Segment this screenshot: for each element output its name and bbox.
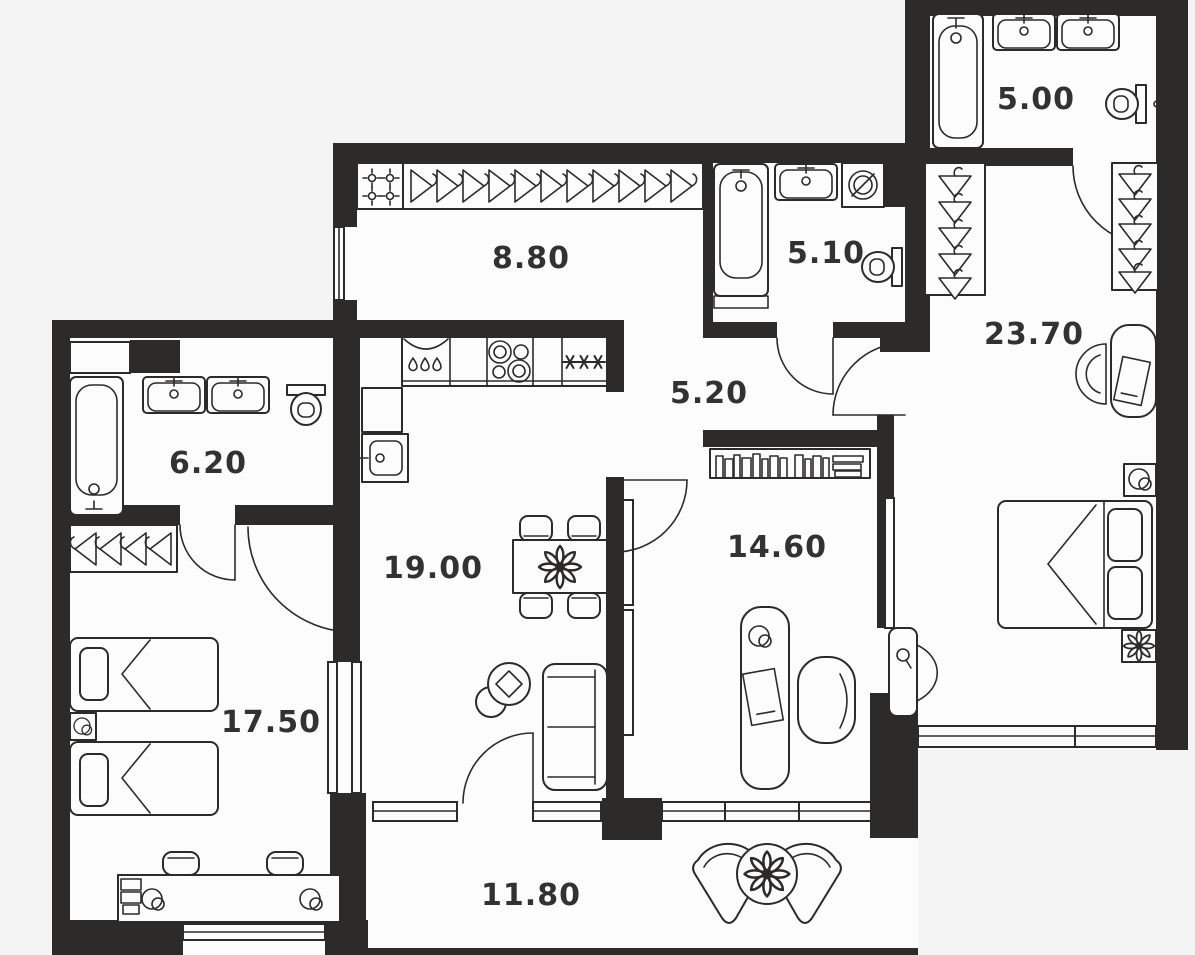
sliding-panel: [623, 610, 633, 735]
sliding-panel: [328, 662, 337, 793]
side-table-icon: [488, 663, 530, 705]
room-label-hallway: 5.20: [670, 376, 748, 411]
bed-icon: [70, 638, 218, 711]
bed-icon: [998, 501, 1152, 628]
room-label-study: 14.60: [727, 530, 827, 565]
stool-icon: [267, 852, 303, 875]
chair-icon: [520, 593, 552, 618]
window-study: [662, 802, 871, 821]
room-label-kitchen-living: 19.00: [383, 551, 483, 586]
bathtub-icon: [714, 164, 768, 308]
bathtub-icon: [933, 14, 983, 148]
hanger-rail: [403, 163, 703, 209]
room-label-entry-hall: 8.80: [492, 241, 570, 276]
wardrobe-right: [1112, 163, 1158, 293]
bookshelf-icon: [710, 449, 870, 478]
sliding-panel: [623, 500, 633, 605]
floor-plan: 8.80 5.10 5.00 23.70 5.20 6.20 19.00 14.…: [0, 0, 1195, 955]
room-label-balcony: 11.80: [481, 878, 581, 913]
chair-icon: [568, 516, 600, 541]
kitchen-sink-icon: [356, 434, 408, 482]
armchair-icon: [798, 657, 855, 743]
washing-machine-icon: [842, 163, 884, 207]
balcony-table-icon: [737, 844, 797, 904]
nightstand: [70, 713, 96, 740]
shaft-niche: [70, 342, 130, 373]
bathtub-icon: [70, 377, 123, 515]
bed-icon: [70, 742, 218, 815]
sliding-panel: [352, 662, 361, 793]
sink-icon: [1057, 14, 1119, 50]
desk-icon: [741, 607, 789, 789]
room-label-bathroom-2: 5.10: [787, 236, 865, 271]
window-bedroom-master: [918, 726, 1156, 747]
desk-icon: [1111, 325, 1156, 417]
shelf-unit: [357, 163, 403, 209]
room-label-bathroom-master: 5.00: [997, 82, 1075, 117]
sofa-icon: [543, 664, 607, 790]
room-label-bedroom-master: 23.70: [984, 317, 1084, 352]
sink-icon: [207, 377, 269, 413]
sink-icon: [993, 14, 1055, 50]
window-entry-hall: [334, 227, 344, 300]
kitchen-counter: [402, 337, 607, 386]
room-entry-hall: [357, 163, 703, 209]
chair-icon: [568, 593, 600, 618]
chair-icon: [520, 516, 552, 541]
room-label-bathroom-1: 6.20: [169, 446, 247, 481]
sliding-panel: [885, 498, 894, 628]
window-living-left: [373, 802, 457, 821]
stool-icon: [163, 852, 199, 875]
kitchen-cabinet: [362, 388, 402, 432]
floor-plan-svg: 8.80 5.10 5.00 23.70 5.20 6.20 19.00 14.…: [0, 0, 1195, 955]
plant-icon: [1122, 630, 1156, 662]
room-label-bedroom-2: 17.50: [221, 705, 321, 740]
wardrobe-nook: [70, 525, 177, 572]
balcony-edge: [330, 948, 918, 955]
nightstand: [1124, 464, 1156, 496]
sink-icon: [143, 377, 205, 413]
sink-icon: [775, 164, 837, 200]
window-bedroom2: [183, 924, 325, 940]
wardrobe-left: [925, 163, 985, 299]
window-living-right: [533, 802, 601, 821]
dresser-icon: [118, 875, 340, 922]
